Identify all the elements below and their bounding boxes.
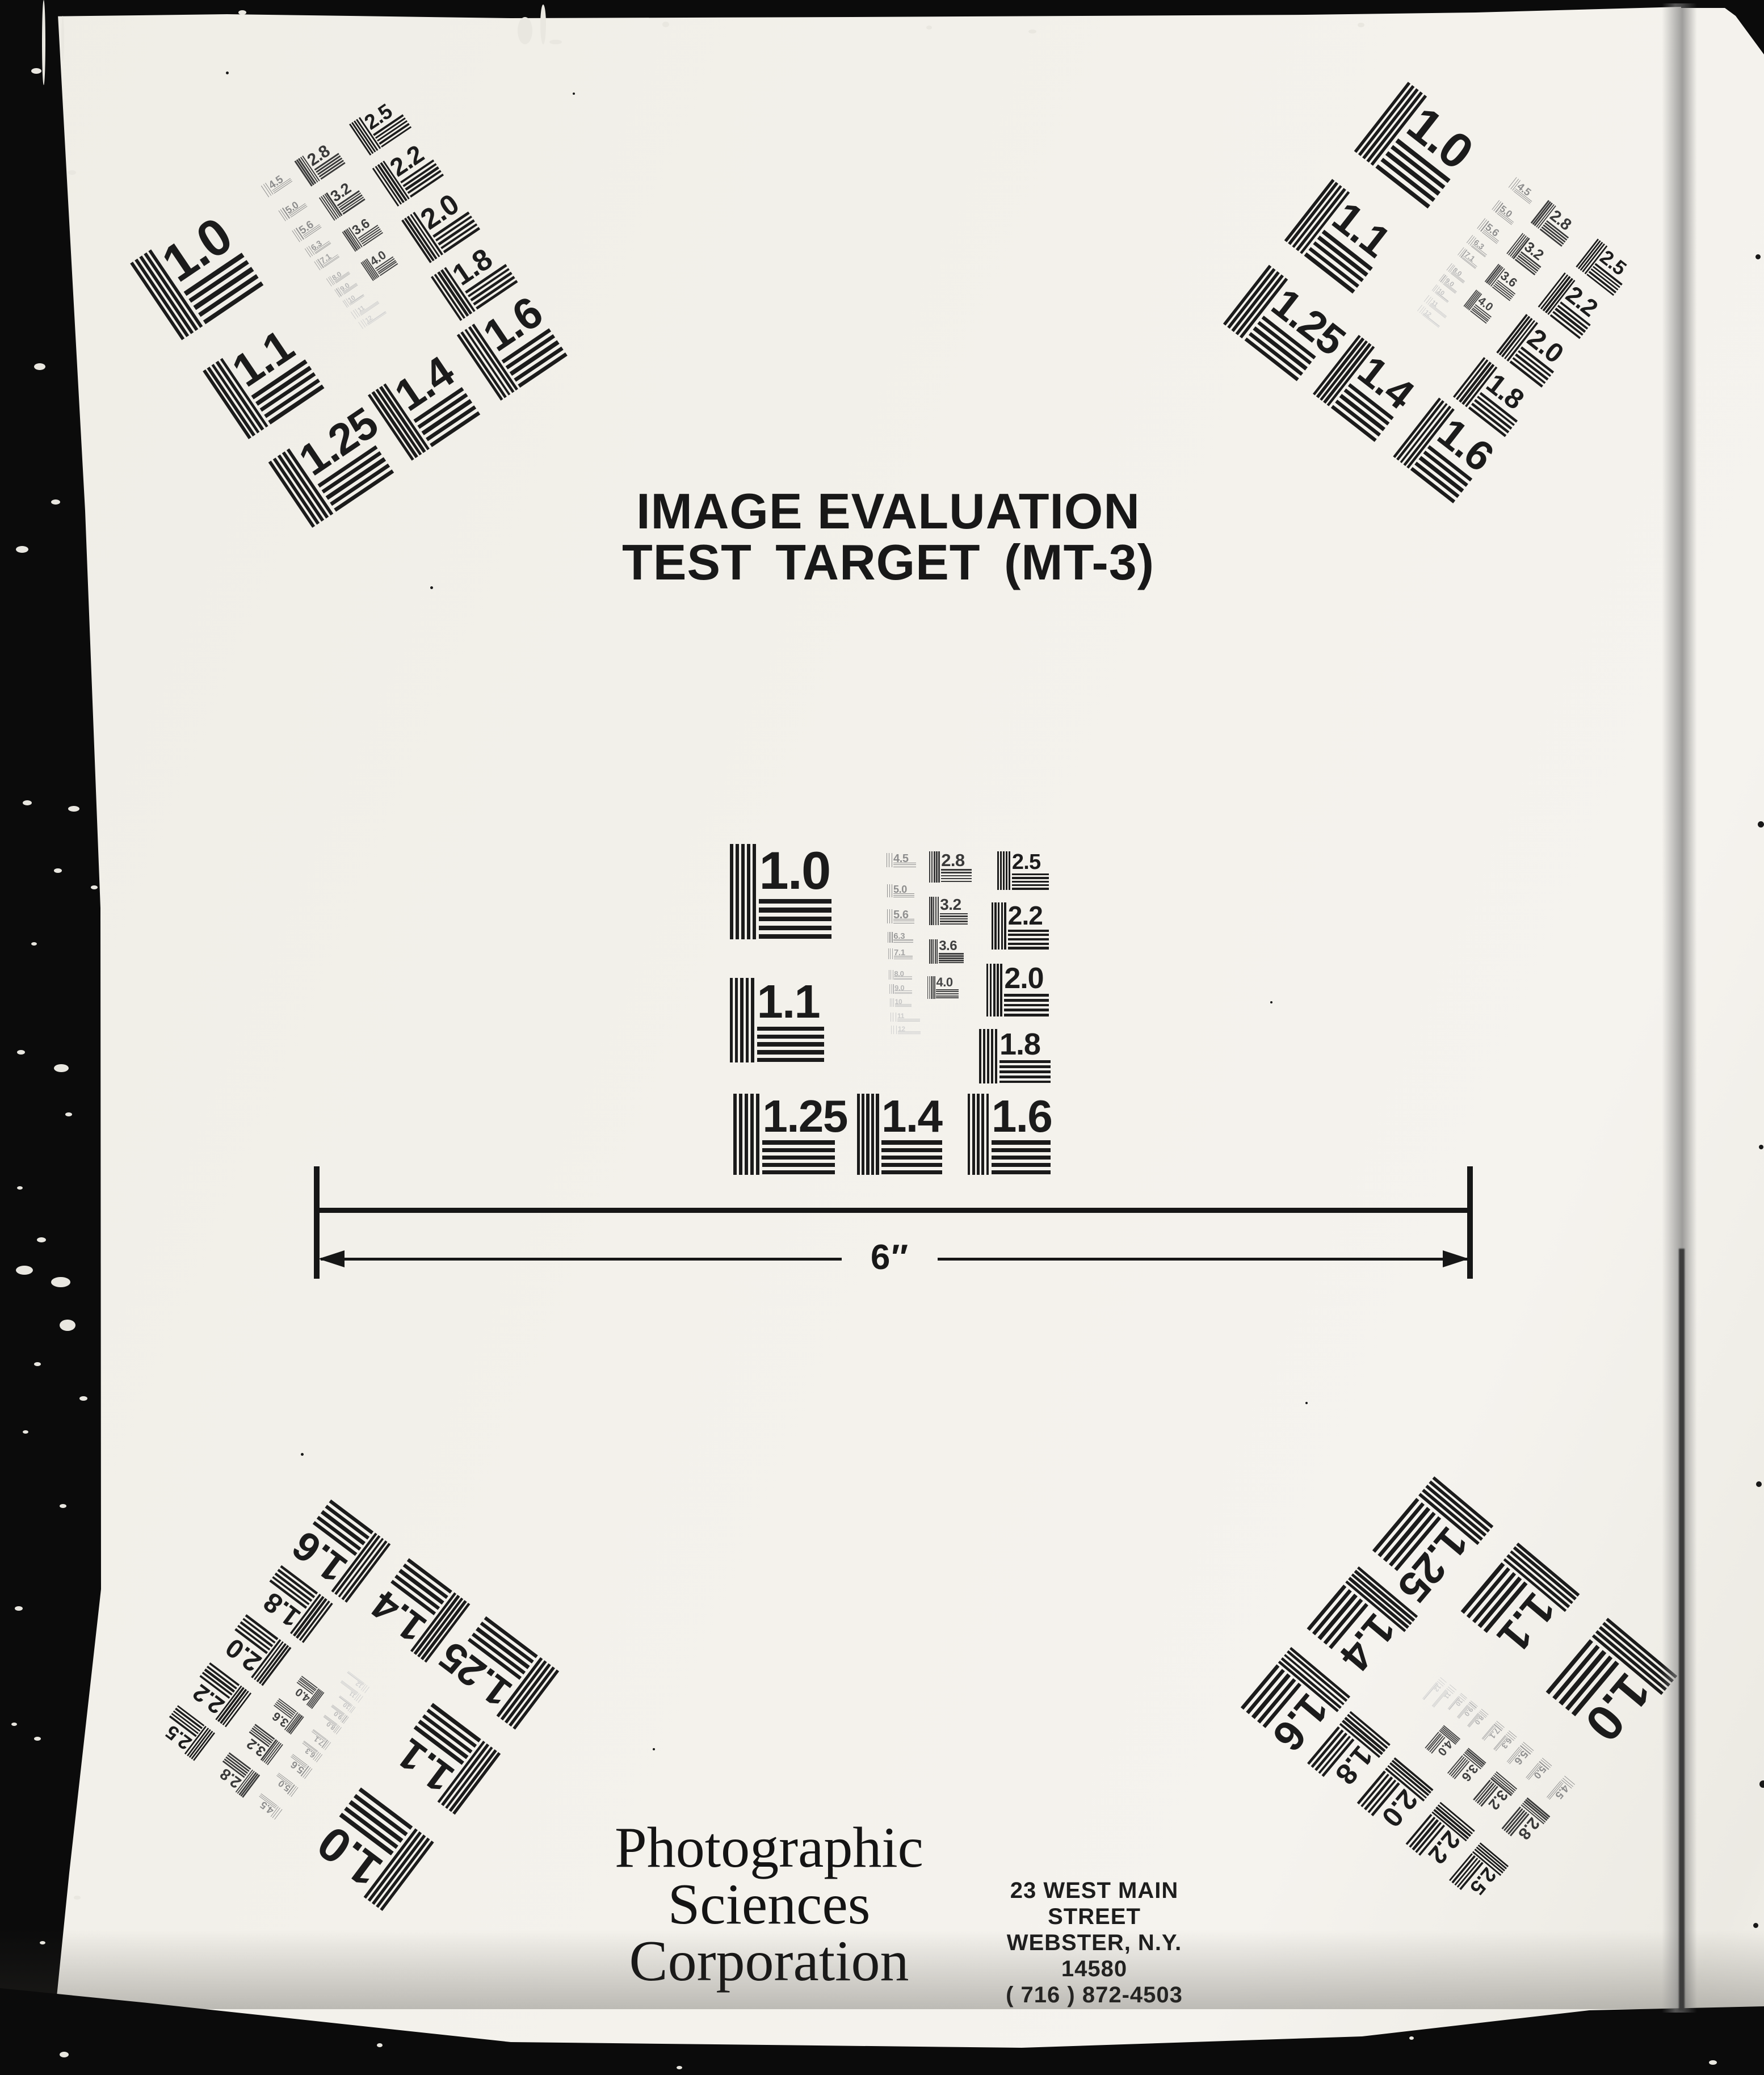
resolution-element-7.1: 7.1 bbox=[888, 948, 913, 959]
resolution-element-3.2: 3.2 bbox=[1506, 233, 1551, 275]
element-value: 2.8 bbox=[941, 851, 971, 869]
white-dust-speck bbox=[34, 1737, 41, 1741]
resolution-element-2.0: 2.0 bbox=[986, 964, 1049, 1017]
resolution-element-1.4: 1.4 bbox=[857, 1094, 942, 1175]
vertical-bars bbox=[927, 976, 935, 999]
white-dust-speck bbox=[549, 40, 562, 44]
horizontal-bars bbox=[894, 990, 912, 993]
resolution-element-1.1: 1.1 bbox=[730, 978, 824, 1062]
horizontal-bars bbox=[898, 1031, 921, 1034]
element-value: 7.1 bbox=[894, 948, 913, 955]
resolution-element-8.0: 8.0 bbox=[889, 970, 912, 980]
resolution-element-2.2: 2.2 bbox=[992, 902, 1049, 950]
resolution-element-3.6: 3.6 bbox=[929, 939, 964, 964]
white-dust-speck bbox=[54, 868, 62, 873]
ruler-length-label: 6″ bbox=[833, 1237, 947, 1278]
resolution-element-9.0: 9.0 bbox=[889, 984, 912, 994]
element-value: 1.6 bbox=[992, 1094, 1051, 1139]
white-dust-speck bbox=[61, 16, 64, 61]
element-value: 2.5 bbox=[1012, 851, 1049, 873]
horizontal-bars bbox=[897, 1019, 920, 1022]
white-dust-speck bbox=[518, 17, 532, 44]
resolution-element-5.0: 5.0 bbox=[1526, 1758, 1552, 1786]
element-value: 3.2 bbox=[940, 897, 967, 913]
white-dust-speck bbox=[677, 2066, 682, 2069]
page-edge-line bbox=[1679, 1249, 1685, 2010]
black-dust-speck bbox=[226, 72, 229, 74]
resolution-element-1.25: 1.25 bbox=[733, 1094, 835, 1175]
vertical-bars bbox=[979, 1029, 998, 1083]
horizontal-bars bbox=[999, 1060, 1050, 1083]
white-dust-speck bbox=[540, 5, 546, 44]
vertical-bars bbox=[888, 948, 893, 959]
horizontal-bars bbox=[895, 1004, 912, 1007]
resolution-element-12: 12 bbox=[891, 1026, 921, 1034]
white-dust-speck bbox=[31, 942, 37, 946]
vertical-bars bbox=[968, 1094, 989, 1175]
horizontal-bars bbox=[940, 913, 967, 925]
white-dust-speck bbox=[60, 1504, 66, 1508]
white-dust-speck bbox=[51, 1277, 70, 1287]
resolution-element-4.5: 4.5 bbox=[1547, 1775, 1575, 1805]
resolution-element-3.6: 3.6 bbox=[266, 1698, 304, 1734]
horizontal-bars bbox=[936, 989, 958, 999]
resolution-element-1.8: 1.8 bbox=[979, 1029, 1051, 1083]
element-value: 1.0 bbox=[759, 844, 831, 897]
vertical-bars bbox=[997, 851, 1011, 890]
white-dust-speck bbox=[40, 1941, 45, 1944]
company-line-2: Sciences bbox=[542, 1876, 996, 1933]
black-dust-speck bbox=[1758, 821, 1764, 828]
horizontal-bars bbox=[894, 976, 912, 979]
vertical-bars bbox=[929, 939, 938, 964]
horizontal-bars bbox=[759, 899, 831, 939]
ruler-thick-line bbox=[318, 1208, 1469, 1213]
black-dust-speck bbox=[1753, 1923, 1758, 1928]
resolution-element-3.6: 3.6 bbox=[342, 213, 383, 251]
resolution-element-4.0: 4.0 bbox=[289, 1675, 324, 1709]
vertical-bars bbox=[730, 978, 754, 1062]
white-dust-speck bbox=[1028, 30, 1036, 33]
resolution-element-4.5: 4.5 bbox=[1508, 177, 1538, 204]
resolution-element-3.6: 3.6 bbox=[1484, 263, 1523, 301]
ruler-arrow-line-right bbox=[938, 1258, 1469, 1261]
white-dust-speck bbox=[74, 1896, 81, 1900]
resolution-element-6.3: 6.3 bbox=[888, 932, 913, 943]
white-dust-speck bbox=[79, 1396, 87, 1401]
vertical-bars bbox=[891, 1026, 897, 1034]
element-value: 9.0 bbox=[894, 984, 912, 990]
resolution-element-5.6: 5.6 bbox=[1477, 218, 1505, 243]
horizontal-bars bbox=[881, 1140, 942, 1174]
resolution-element-3.2: 3.2 bbox=[929, 897, 968, 925]
vertical-bars bbox=[891, 1013, 896, 1022]
white-dust-speck bbox=[34, 1362, 41, 1366]
resolution-element-11: 11 bbox=[891, 1013, 920, 1022]
white-dust-speck bbox=[926, 26, 932, 30]
horizontal-bars bbox=[762, 1140, 834, 1174]
vertical-bars bbox=[889, 984, 894, 994]
element-value: 5.6 bbox=[893, 909, 914, 918]
white-dust-speck bbox=[68, 806, 79, 812]
white-dust-speck bbox=[1409, 2036, 1414, 2040]
white-dust-speck bbox=[17, 1050, 25, 1055]
white-dust-speck bbox=[37, 1237, 46, 1242]
black-dust-speck bbox=[573, 93, 575, 95]
resolution-element-4.0: 4.0 bbox=[1463, 289, 1499, 324]
element-value: 11 bbox=[897, 1013, 920, 1018]
vertical-bars bbox=[889, 970, 893, 980]
white-dust-speck bbox=[51, 499, 60, 505]
white-dust-speck bbox=[1358, 23, 1364, 27]
horizontal-bars bbox=[1012, 873, 1049, 890]
company-line-1: Photographic bbox=[542, 1820, 996, 1876]
horizontal-bars bbox=[893, 863, 916, 867]
resolution-element-4.5: 4.5 bbox=[261, 170, 292, 197]
black-dust-speck bbox=[301, 1453, 304, 1456]
resolution-element-3.2: 3.2 bbox=[1473, 1771, 1517, 1817]
vertical-bars bbox=[887, 853, 892, 867]
address-street: 23 WEST MAIN STREET bbox=[981, 1877, 1208, 1930]
black-dust-speck bbox=[1759, 1145, 1763, 1149]
ruler-arrow-line-left bbox=[321, 1258, 842, 1261]
vertical-bars bbox=[890, 998, 894, 1007]
element-value: 12 bbox=[898, 1026, 921, 1031]
left-arrowhead-icon bbox=[318, 1250, 345, 1267]
resolution-element-5.0: 5.0 bbox=[887, 884, 914, 897]
bottom-edge-shadow bbox=[0, 1930, 1764, 2009]
resolution-element-3.2: 3.2 bbox=[240, 1724, 283, 1765]
element-value: 3.6 bbox=[939, 939, 963, 953]
vertical-bars bbox=[888, 932, 893, 943]
white-dust-speck bbox=[42, 0, 45, 85]
horizontal-bars bbox=[1004, 994, 1048, 1016]
element-value: 6.3 bbox=[893, 932, 913, 939]
resolution-element-2.8: 2.8 bbox=[929, 851, 972, 883]
element-value: 10 bbox=[895, 998, 912, 1004]
resolution-element-4.0: 4.0 bbox=[927, 976, 959, 999]
resolution-element-4.5: 4.5 bbox=[887, 853, 916, 867]
resolution-element-3.6: 3.6 bbox=[1447, 1748, 1486, 1788]
element-value: 8.0 bbox=[894, 970, 912, 976]
black-dust-speck bbox=[1755, 254, 1761, 259]
black-dust-speck bbox=[653, 1748, 655, 1750]
white-dust-speck bbox=[16, 1266, 33, 1275]
element-value: 1.4 bbox=[881, 1094, 942, 1139]
white-dust-speck bbox=[16, 546, 28, 553]
element-value: 5.0 bbox=[893, 884, 914, 893]
resolution-element-10: 10 bbox=[890, 998, 912, 1007]
horizontal-bars bbox=[1008, 930, 1049, 950]
scanned-test-target-page: { "page": { "kind": "Scanned microfilm i… bbox=[0, 0, 1764, 2075]
test-pattern-center: 1.01.11.251.41.61.82.02.22.52.83.23.64.0… bbox=[730, 844, 1051, 1175]
white-dust-speck bbox=[65, 1112, 72, 1116]
resolution-element-1.6: 1.6 bbox=[968, 1094, 1051, 1175]
vertical-bars bbox=[730, 844, 757, 939]
resolution-element-3.2: 3.2 bbox=[318, 177, 365, 220]
right-arrowhead-icon bbox=[1443, 1250, 1469, 1267]
white-dust-speck bbox=[60, 2052, 69, 2057]
element-value: 1.1 bbox=[757, 978, 824, 1025]
white-dust-speck bbox=[15, 1606, 23, 1611]
white-dust-speck bbox=[11, 1723, 17, 1726]
vertical-bars bbox=[986, 964, 1003, 1017]
element-value: 4.0 bbox=[936, 976, 958, 989]
horizontal-bars bbox=[939, 953, 963, 963]
resolution-element-5.6: 5.6 bbox=[887, 909, 914, 923]
vertical-bars bbox=[733, 1094, 760, 1175]
white-dust-speck bbox=[23, 800, 32, 805]
white-dust-speck bbox=[17, 1186, 23, 1190]
title-line-2: TEST TARGET (MT-3) bbox=[604, 537, 1172, 588]
black-dust-speck bbox=[430, 586, 433, 589]
resolution-element-5.0: 5.0 bbox=[1492, 200, 1519, 225]
black-dust-speck bbox=[1756, 1481, 1762, 1487]
resolution-element-2.5: 2.5 bbox=[997, 851, 1049, 890]
resolution-element-5.6: 5.6 bbox=[1506, 1742, 1534, 1770]
element-value: 2.2 bbox=[1008, 902, 1049, 929]
white-dust-speck bbox=[377, 2043, 383, 2047]
white-dust-speck bbox=[60, 1320, 75, 1331]
horizontal-bars bbox=[893, 893, 914, 897]
vertical-bars bbox=[929, 851, 940, 883]
horizontal-bars bbox=[992, 1140, 1051, 1174]
title-line-1: IMAGE EVALUATION bbox=[604, 486, 1172, 537]
white-dust-speck bbox=[31, 68, 41, 74]
white-dust-speck bbox=[91, 885, 98, 889]
horizontal-bars bbox=[894, 956, 913, 959]
white-dust-speck bbox=[662, 22, 669, 27]
element-value: 1.25 bbox=[762, 1094, 834, 1139]
white-dust-speck bbox=[1709, 2060, 1717, 2065]
black-dust-speck bbox=[1270, 1001, 1272, 1003]
horizontal-bars bbox=[893, 919, 914, 923]
vertical-bars bbox=[992, 902, 1006, 950]
resolution-element-1.0: 1.0 bbox=[730, 844, 831, 939]
resolution-element-5.6: 5.6 bbox=[285, 1754, 312, 1779]
white-dust-speck bbox=[54, 1064, 69, 1072]
black-dust-speck bbox=[1759, 1780, 1764, 1788]
white-dust-speck bbox=[68, 170, 76, 175]
resolution-element-5.6: 5.6 bbox=[292, 216, 321, 242]
horizontal-bars bbox=[893, 939, 913, 943]
resolution-element-4.0: 4.0 bbox=[1425, 1725, 1460, 1761]
vertical-bars bbox=[929, 897, 939, 925]
page-title: IMAGE EVALUATION TEST TARGET (MT-3) bbox=[604, 486, 1172, 588]
black-dust-speck bbox=[1305, 1402, 1308, 1404]
element-value: 1.8 bbox=[999, 1029, 1050, 1060]
vertical-bars bbox=[857, 1094, 879, 1175]
white-dust-speck bbox=[238, 10, 246, 15]
resolution-element-5.0: 5.0 bbox=[271, 1772, 298, 1797]
element-value: 2.0 bbox=[1004, 964, 1048, 993]
white-dust-speck bbox=[23, 1430, 28, 1434]
resolution-element-4.0: 4.0 bbox=[360, 246, 398, 281]
horizontal-bars bbox=[941, 869, 971, 882]
horizontal-bars bbox=[757, 1027, 824, 1062]
resolution-element-4.5: 4.5 bbox=[253, 1793, 282, 1819]
white-dust-speck bbox=[34, 363, 45, 370]
vertical-bars bbox=[887, 909, 893, 923]
vertical-bars bbox=[887, 884, 893, 897]
resolution-element-5.0: 5.0 bbox=[278, 196, 307, 221]
element-value: 4.5 bbox=[893, 853, 916, 862]
